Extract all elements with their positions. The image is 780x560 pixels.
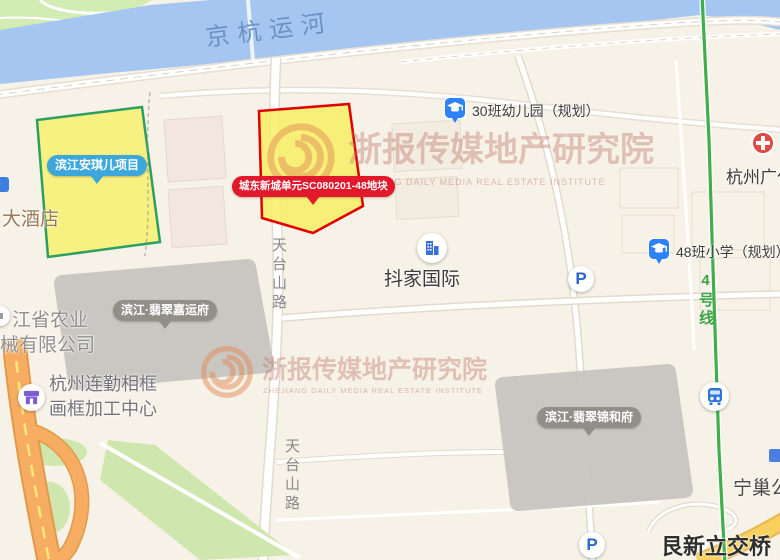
frame-center-label-line2: 画框加工中心	[49, 395, 157, 421]
agri-company-label-line2: 械有限公司	[0, 330, 95, 357]
station-label-partial	[769, 449, 780, 462]
building-icon[interactable]	[417, 233, 447, 263]
bubble-anqier[interactable]: 滨江安琪儿项目	[47, 155, 147, 176]
hospital-icon[interactable]	[750, 130, 776, 156]
building-blocks	[164, 116, 227, 248]
bubble-jiayunfu[interactable]: 滨江·翡翠嘉运府	[113, 300, 217, 321]
bubble-jinhefu[interactable]: 滨江·翡翠锦和府	[537, 407, 641, 428]
hospital-label: 杭州广仁	[726, 163, 780, 188]
parcel-jinhefu[interactable]	[503, 372, 685, 503]
school-icon[interactable]	[648, 238, 670, 265]
agri-company-label-line1: 江省农业	[12, 305, 88, 332]
hotel-label: 大酒店	[2, 204, 59, 231]
frame-center-label-line1: 杭州连勤相框	[49, 370, 157, 396]
doujia-label: 抖家国际	[384, 264, 460, 291]
river	[0, 0, 780, 84]
hotel-icon[interactable]	[0, 177, 9, 192]
bubble-target-parcel[interactable]: 城东新城单元SC080201-48地块	[232, 176, 395, 197]
map-canvas[interactable]: 浙报传媒地产研究院 ZHEJIANG DAILY MEDIA REAL ESTA…	[0, 0, 780, 560]
parcel-target[interactable]	[259, 104, 363, 233]
ningchao-label: 宁巢公	[733, 473, 780, 500]
primary-school-label: 48班小学（规划）	[676, 242, 780, 262]
road-label-tiantaishan-2: 天台山路	[281, 438, 302, 514]
parking-icon[interactable]: P	[579, 532, 605, 558]
metro-line4-label: 4号线	[695, 272, 716, 328]
bus-station-icon[interactable]	[700, 382, 729, 411]
shop-icon[interactable]	[18, 384, 45, 411]
road-label-tiantaishan-1: 天台山路	[268, 237, 289, 313]
school-icon[interactable]	[444, 97, 466, 124]
interchange-label: 艮新立交桥	[661, 529, 771, 560]
parking-icon[interactable]: P	[568, 266, 594, 292]
kindergarten-label: 30班幼儿园（规划）	[472, 101, 600, 121]
